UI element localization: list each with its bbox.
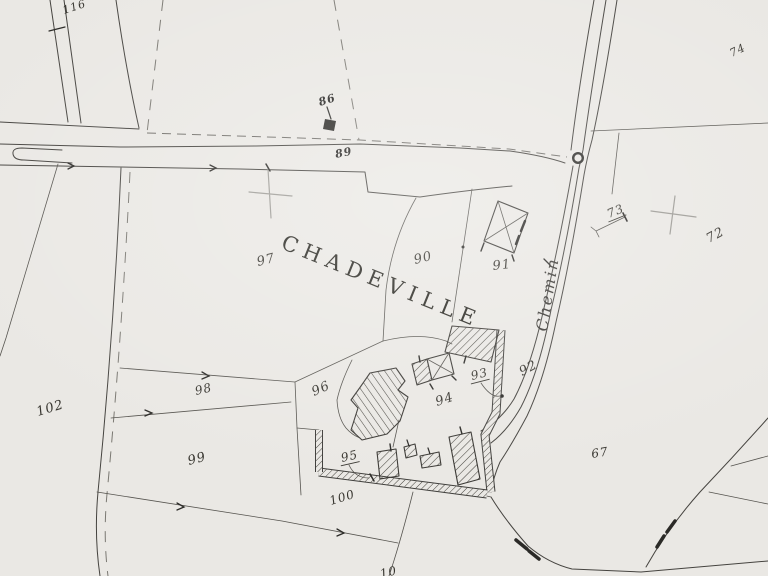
parcel-label-91: 91 [492,257,512,274]
outbuilding-95-tick [390,444,391,451]
outbuilding-parcel95 [377,449,399,479]
parcel-label-67: 67 [590,444,609,461]
svg-text:67: 67 [590,444,609,461]
marker-86-square [323,119,336,131]
well-marker-circle [573,153,583,163]
cadastral-map-viewport: 1168689747273979091929394959698991001026… [0,0,768,576]
dot-93 [500,394,504,398]
cadastral-map: 1168689747273979091929394959698991001026… [0,0,768,576]
svg-text:91: 91 [492,257,512,274]
dot-divider-90-91 [462,246,465,249]
tiny-building-1 [404,444,417,458]
